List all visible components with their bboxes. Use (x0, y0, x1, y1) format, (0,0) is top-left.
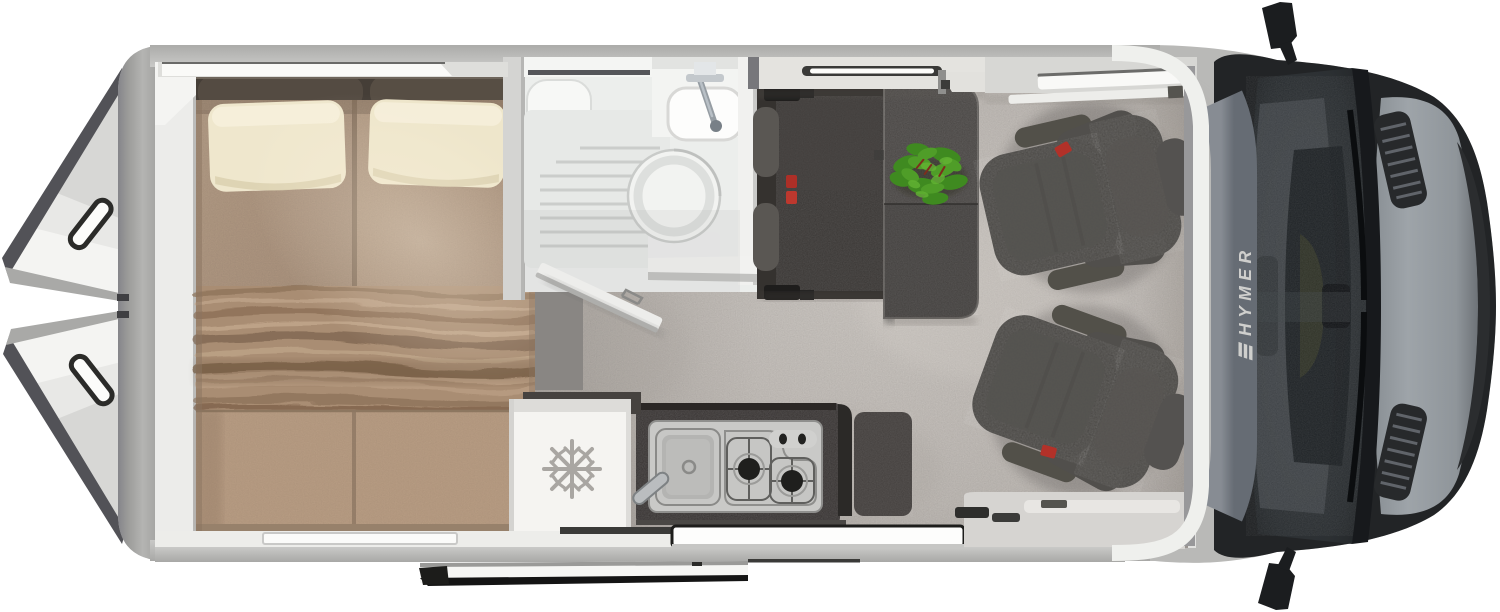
svg-text:HYMER: HYMER (1235, 245, 1255, 336)
